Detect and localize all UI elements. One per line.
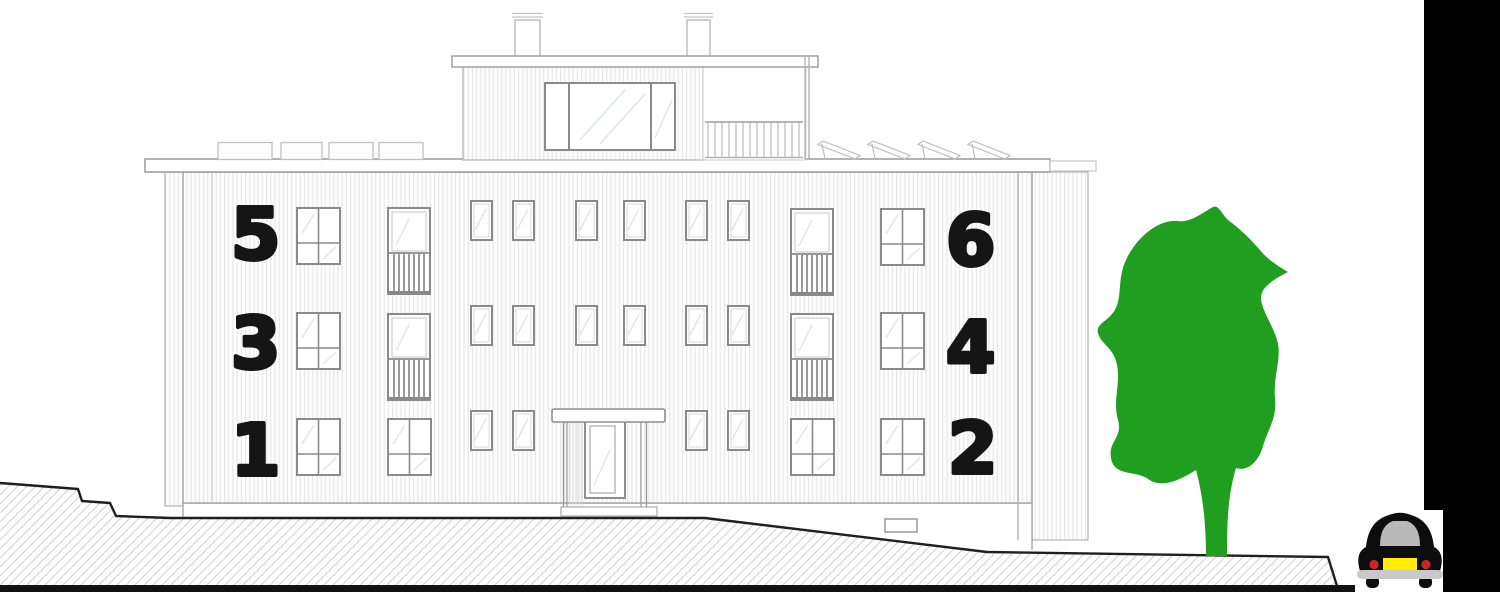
unit-number-1[interactable]: 1 (231, 409, 280, 492)
taillight-left (1369, 560, 1378, 569)
license-plate (1383, 558, 1417, 570)
car-rear-icon (1357, 513, 1443, 588)
window-small (471, 306, 492, 345)
window-small (513, 411, 534, 450)
window-small (624, 306, 645, 345)
unit-number-4[interactable]: 4 (946, 306, 995, 389)
penthouse-window (545, 83, 675, 150)
window-small (513, 201, 534, 240)
entrance-canopy (552, 409, 665, 422)
window-four-pane (881, 209, 924, 265)
unit-number-2[interactable]: 2 (948, 407, 997, 490)
chimney-left (515, 20, 540, 57)
sidebar-upper (1424, 0, 1500, 510)
window-small (471, 411, 492, 450)
balcony-door (791, 209, 833, 295)
penthouse-terrace (703, 65, 806, 160)
window-four-pane (881, 419, 924, 475)
penthouse (452, 14, 818, 161)
balcony-door (388, 314, 430, 400)
balcony-door (791, 314, 833, 400)
window-small (728, 306, 749, 345)
taillight-right (1421, 560, 1430, 569)
window-small (576, 306, 597, 345)
sidebar-lower (1443, 510, 1500, 592)
roof-railing (218, 143, 423, 160)
window-small (576, 201, 597, 240)
window-small (686, 306, 707, 345)
unit-number-3[interactable]: 3 (231, 302, 280, 385)
window-four-pane (791, 419, 834, 475)
window-four-pane (881, 313, 924, 369)
penthouse-roof-slab (452, 56, 818, 67)
building-elevation-canvas: 5 3 1 6 4 2 (0, 0, 1500, 592)
solar-panels (818, 141, 1010, 159)
window-four-pane (297, 208, 340, 264)
window-small (513, 306, 534, 345)
window-small (686, 411, 707, 450)
roof-slab-extension (1050, 161, 1096, 171)
window-small (686, 201, 707, 240)
window-four-pane (297, 419, 340, 475)
foundation-vent (885, 519, 917, 532)
bottom-border (0, 585, 1355, 592)
window-four-pane (388, 419, 431, 475)
window-small (728, 201, 749, 240)
unit-number-5[interactable]: 5 (231, 193, 280, 276)
tree-icon (1098, 206, 1288, 556)
window-small (471, 201, 492, 240)
building: 5 3 1 6 4 2 (145, 14, 1096, 556)
unit-number-6[interactable]: 6 (946, 199, 995, 282)
chimney-right (687, 20, 710, 57)
window-four-pane (297, 313, 340, 369)
car-bumper (1357, 570, 1443, 579)
balcony-door (388, 208, 430, 294)
window-small (624, 201, 645, 240)
roof-slab (145, 159, 1050, 172)
elevation-drawing-page: 5 3 1 6 4 2 (0, 0, 1500, 592)
tree-shape (1098, 206, 1288, 556)
black-sidebar (1424, 0, 1500, 592)
right-wing-wall (1032, 172, 1088, 540)
window-small (728, 411, 749, 450)
entrance-step (561, 507, 657, 516)
